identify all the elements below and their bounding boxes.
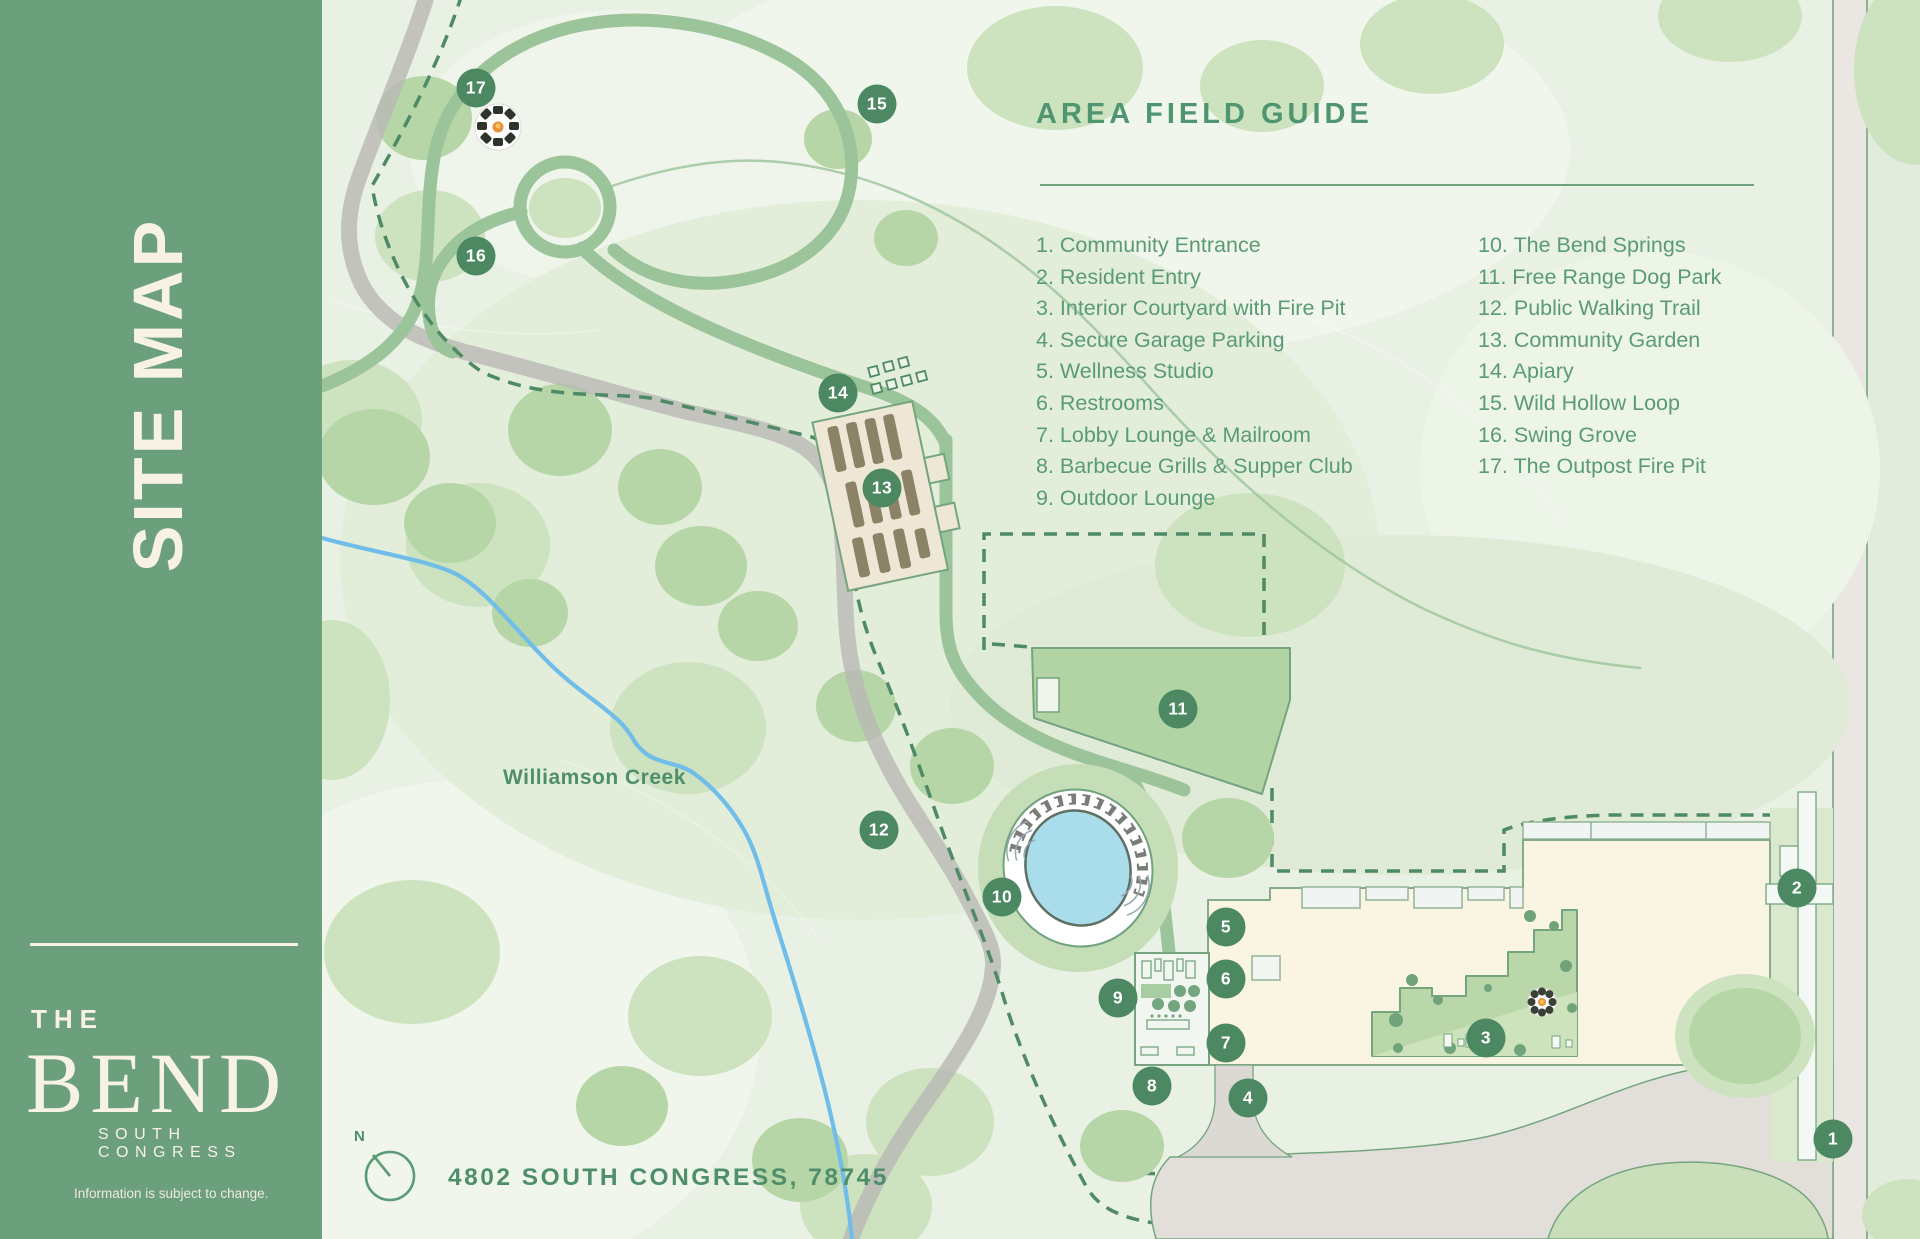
legend-item: 16. Swing Grove	[1478, 420, 1920, 452]
map-marker-10: 10	[983, 878, 1022, 917]
legend-item: 1. Community Entrance	[1036, 230, 1478, 262]
dog-park-gate	[1037, 678, 1059, 712]
sidebar: SITE MAP THE BEND SOUTH CONGRESS Informa…	[0, 0, 322, 1239]
map-marker-5: 5	[1207, 908, 1246, 947]
map-marker-15: 15	[858, 85, 897, 124]
legend-item: 13. Community Garden	[1478, 325, 1920, 357]
legend-item: 2. Resident Entry	[1036, 262, 1478, 294]
legend-title: AREA FIELD GUIDE	[1036, 98, 1373, 131]
legend-item: 4. Secure Garage Parking	[1036, 325, 1478, 357]
creek-label: Williamson Creek	[503, 766, 686, 790]
map-marker-16: 16	[457, 237, 496, 276]
legend-item: 6. Restrooms	[1036, 388, 1478, 420]
map-marker-9: 9	[1099, 979, 1138, 1018]
amenity-block	[1135, 953, 1209, 1065]
compass: N	[352, 1128, 432, 1218]
street-address: 4802 SOUTH CONGRESS, 78745	[448, 1164, 889, 1192]
map-marker-1: 1	[1814, 1120, 1853, 1159]
legend-item: 10. The Bend Springs	[1478, 230, 1920, 262]
map-marker-8: 8	[1133, 1067, 1172, 1106]
brand-name: BEND	[26, 1040, 288, 1126]
map-marker-14: 14	[819, 374, 858, 413]
legend-divider	[1040, 184, 1754, 186]
legend-item: 12. Public Walking Trail	[1478, 293, 1920, 325]
map-marker-13: 13	[863, 469, 902, 508]
map-marker-12: 12	[860, 811, 899, 850]
map-marker-17: 17	[457, 69, 496, 108]
legend-item: 14. Apiary	[1478, 356, 1920, 388]
legend-item: 17. The Outpost Fire Pit	[1478, 451, 1920, 483]
legend-item: 15. Wild Hollow Loop	[1478, 388, 1920, 420]
map-marker-6: 6	[1207, 960, 1246, 999]
legend-item: 7. Lobby Lounge & Mailroom	[1036, 420, 1478, 452]
brand-subtitle: SOUTH CONGRESS	[98, 1126, 322, 1162]
map-marker-7: 7	[1207, 1024, 1246, 1063]
right-road	[1832, 0, 1920, 1239]
legend-item: 8. Barbecue Grills & Supper Club	[1036, 451, 1478, 483]
sidebar-divider	[30, 943, 298, 946]
legend-item: 5. Wellness Studio	[1036, 356, 1478, 388]
legend-item: 11. Free Range Dog Park	[1478, 262, 1920, 294]
sidebar-vertical-title: SITE MAP	[118, 218, 198, 573]
map-marker-2: 2	[1778, 869, 1817, 908]
map-marker-3: 3	[1467, 1019, 1506, 1058]
map-marker-4: 4	[1229, 1079, 1268, 1118]
brand-the: THE	[31, 1004, 104, 1035]
outpost-fire-pit	[475, 104, 521, 150]
site-map-page: SITE MAP THE BEND SOUTH CONGRESS Informa…	[0, 0, 1920, 1239]
legend-item: 3. Interior Courtyard with Fire Pit	[1036, 293, 1478, 325]
legend-item: 9. Outdoor Lounge	[1036, 483, 1478, 515]
legend-column-2: 10. The Bend Springs11. Free Range Dog P…	[1478, 230, 1920, 514]
map-marker-11: 11	[1159, 690, 1198, 729]
courtyard-fire-pit	[1528, 988, 1557, 1017]
legend-column-1: 1. Community Entrance2. Resident Entry3.…	[1036, 230, 1478, 514]
area-field-guide: AREA FIELD GUIDE 1. Community Entrance2.…	[1036, 98, 1373, 131]
compass-icon	[358, 1142, 422, 1210]
disclaimer-text: Information is subject to change.	[74, 1186, 268, 1201]
